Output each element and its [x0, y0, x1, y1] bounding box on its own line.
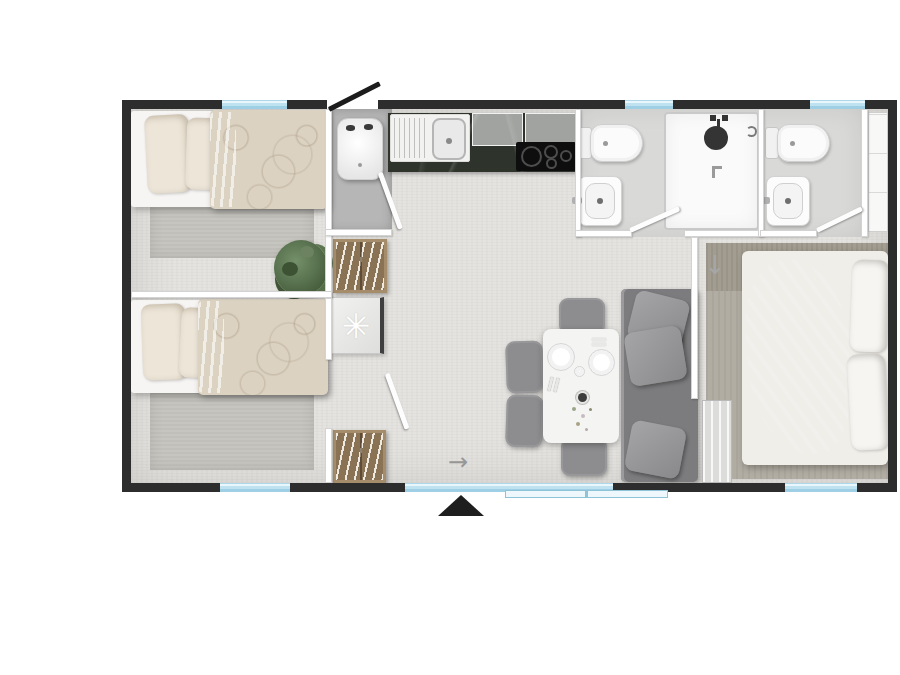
candle-icon	[578, 393, 587, 402]
wall-bedroom1-hall	[325, 109, 332, 298]
water-heater-knob	[364, 124, 373, 130]
floor-plan-canvas: ✳	[0, 0, 900, 675]
wall-bath-bottom-left	[575, 230, 632, 237]
sliding-door-rail	[505, 490, 668, 498]
hob-burner	[560, 150, 572, 162]
wall-bottom	[290, 483, 405, 492]
tall-wardrobe	[868, 112, 888, 232]
sofa-cushion	[624, 419, 688, 480]
washbasin	[766, 176, 810, 226]
wall-shower-wc	[758, 109, 764, 237]
wall-top	[378, 100, 625, 109]
optional-appliance-cabinet: ✳	[331, 297, 384, 354]
water-heater	[337, 118, 383, 180]
upper-cabinet	[472, 113, 523, 146]
duvet-fold	[198, 301, 224, 393]
kitchen-sink	[432, 118, 466, 160]
dining-chair	[561, 438, 607, 476]
duvet-fold	[210, 112, 236, 207]
wall-kitchen-bath	[575, 109, 581, 237]
window-bottom-bedroom2	[220, 483, 290, 492]
wall-closet-bottom	[325, 229, 392, 236]
wall-left	[122, 100, 131, 492]
plate	[588, 349, 615, 376]
hob-burner	[546, 158, 557, 169]
water-heater-knob	[346, 125, 355, 131]
flower-dot	[589, 408, 592, 411]
flower-dot	[585, 428, 588, 431]
wall-top	[287, 100, 327, 109]
sofa-cushion	[623, 325, 688, 387]
small-bowl	[574, 366, 585, 377]
shower-mount	[722, 115, 728, 121]
wall-living-master-partition	[691, 237, 698, 399]
cutlery-icon	[592, 343, 606, 346]
rug-bedroom2	[150, 392, 314, 470]
wall-bedroom2-top	[325, 298, 332, 360]
wall-bedrooms-divider	[131, 291, 332, 298]
flow-arrow-right: →	[448, 450, 468, 474]
dining-chair	[505, 394, 544, 447]
drainer-grooves	[394, 118, 428, 158]
window-bottom-master	[785, 483, 857, 492]
hob-burner	[521, 146, 542, 167]
wall-wc-right	[861, 109, 868, 237]
cooktop-hob	[516, 142, 576, 171]
wall-top	[865, 100, 897, 109]
wall-top	[122, 100, 222, 109]
washbasin-bowl	[773, 183, 803, 219]
flower-dot	[576, 422, 580, 426]
window-top-bedroom1	[222, 100, 287, 109]
shower-knob-icon	[746, 126, 757, 137]
shower-mixer	[712, 166, 715, 178]
wall-right	[888, 100, 897, 492]
hanger-wardrobe-top	[333, 239, 387, 293]
entrance-arrow	[438, 495, 484, 516]
shower-enclosure	[664, 112, 759, 230]
hob-burner	[544, 145, 558, 159]
wall-bath-bottom-right	[684, 230, 760, 237]
toilet	[590, 124, 643, 162]
wall-bottom	[857, 483, 897, 492]
hanger-wardrobe-bottom	[333, 430, 386, 483]
dining-chair	[505, 340, 544, 393]
wall-top	[673, 100, 810, 109]
blanket	[738, 254, 862, 460]
pillow	[849, 259, 889, 352]
plate	[547, 343, 575, 371]
entrance-door-leaf	[328, 81, 381, 111]
cutlery-icon	[592, 338, 606, 341]
flower-dot	[572, 407, 576, 411]
flower-dot	[581, 414, 585, 418]
window-top-wc	[810, 100, 865, 109]
potted-plant	[274, 240, 328, 296]
wall-bottom	[122, 483, 220, 492]
pillow	[847, 353, 890, 451]
window-top-bath	[625, 100, 673, 109]
sliding-door-arrow-down: ↓	[704, 252, 726, 278]
wall-wc-bottom	[760, 230, 817, 237]
washbasin	[578, 176, 622, 226]
shower-mount	[710, 115, 716, 121]
wall-bedroom2-bottom	[325, 428, 332, 483]
asterisk-symbol: ✳	[342, 306, 371, 346]
sliding-door-panel	[702, 400, 732, 483]
washbasin-bowl	[585, 183, 615, 219]
shower-head-icon	[704, 126, 728, 150]
toilet	[777, 124, 830, 162]
